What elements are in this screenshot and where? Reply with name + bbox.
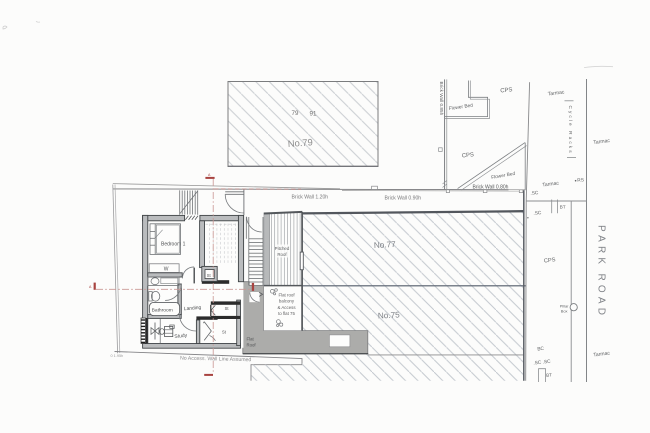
svg-text:79: 79 xyxy=(292,110,299,117)
svg-text:Bathroom: Bathroom xyxy=(152,307,173,313)
svg-text:Brick Wall 0.80h: Brick Wall 0.80h xyxy=(473,184,509,190)
svg-text:BT: BT xyxy=(560,204,566,209)
svg-text:Box: Box xyxy=(561,309,568,314)
svg-text:No.75: No.75 xyxy=(378,310,401,320)
svg-text:Roof: Roof xyxy=(277,252,287,257)
svg-text:PARK: PARK xyxy=(596,225,607,268)
svg-text:Pitched: Pitched xyxy=(275,246,290,251)
svg-text:BC: BC xyxy=(537,346,545,353)
svg-text:.SC: .SC xyxy=(533,210,542,217)
svg-text:Bedroom 1: Bedroom 1 xyxy=(161,241,186,247)
svg-text:Roof: Roof xyxy=(247,343,257,348)
svg-text:CPS: CPS xyxy=(462,152,475,159)
svg-text:RS: RS xyxy=(577,177,584,184)
svg-text:No.79: No.79 xyxy=(287,136,313,149)
svg-text:W: W xyxy=(164,267,169,273)
svg-text:to flat 75: to flat 75 xyxy=(278,311,295,316)
svg-text:Brick Wall 0.85h: Brick Wall 0.85h xyxy=(439,82,444,116)
svg-text:Brick Wall 0.90h: Brick Wall 0.90h xyxy=(385,195,422,201)
svg-text:91: 91 xyxy=(310,111,317,118)
svg-text:Brick Wall 1.20h: Brick Wall 1.20h xyxy=(292,194,329,200)
svg-text:BT: BT xyxy=(546,372,553,378)
svg-text:CPS: CPS xyxy=(544,257,556,264)
svg-text:CPS: CPS xyxy=(500,87,513,94)
svg-text:Cycle Racks: Cycle Racks xyxy=(568,106,573,155)
svg-text:.SC: .SC xyxy=(530,190,539,197)
svg-text:0 1.95h: 0 1.95h xyxy=(111,354,124,358)
svg-text:& Access: & Access xyxy=(277,305,296,310)
svg-text:Flat roof: Flat roof xyxy=(278,293,295,298)
svg-text:Flat: Flat xyxy=(247,337,255,342)
svg-text:No.77: No.77 xyxy=(374,240,397,250)
svg-text:balcony: balcony xyxy=(279,299,295,304)
svg-text:ROAD: ROAD xyxy=(596,274,607,320)
